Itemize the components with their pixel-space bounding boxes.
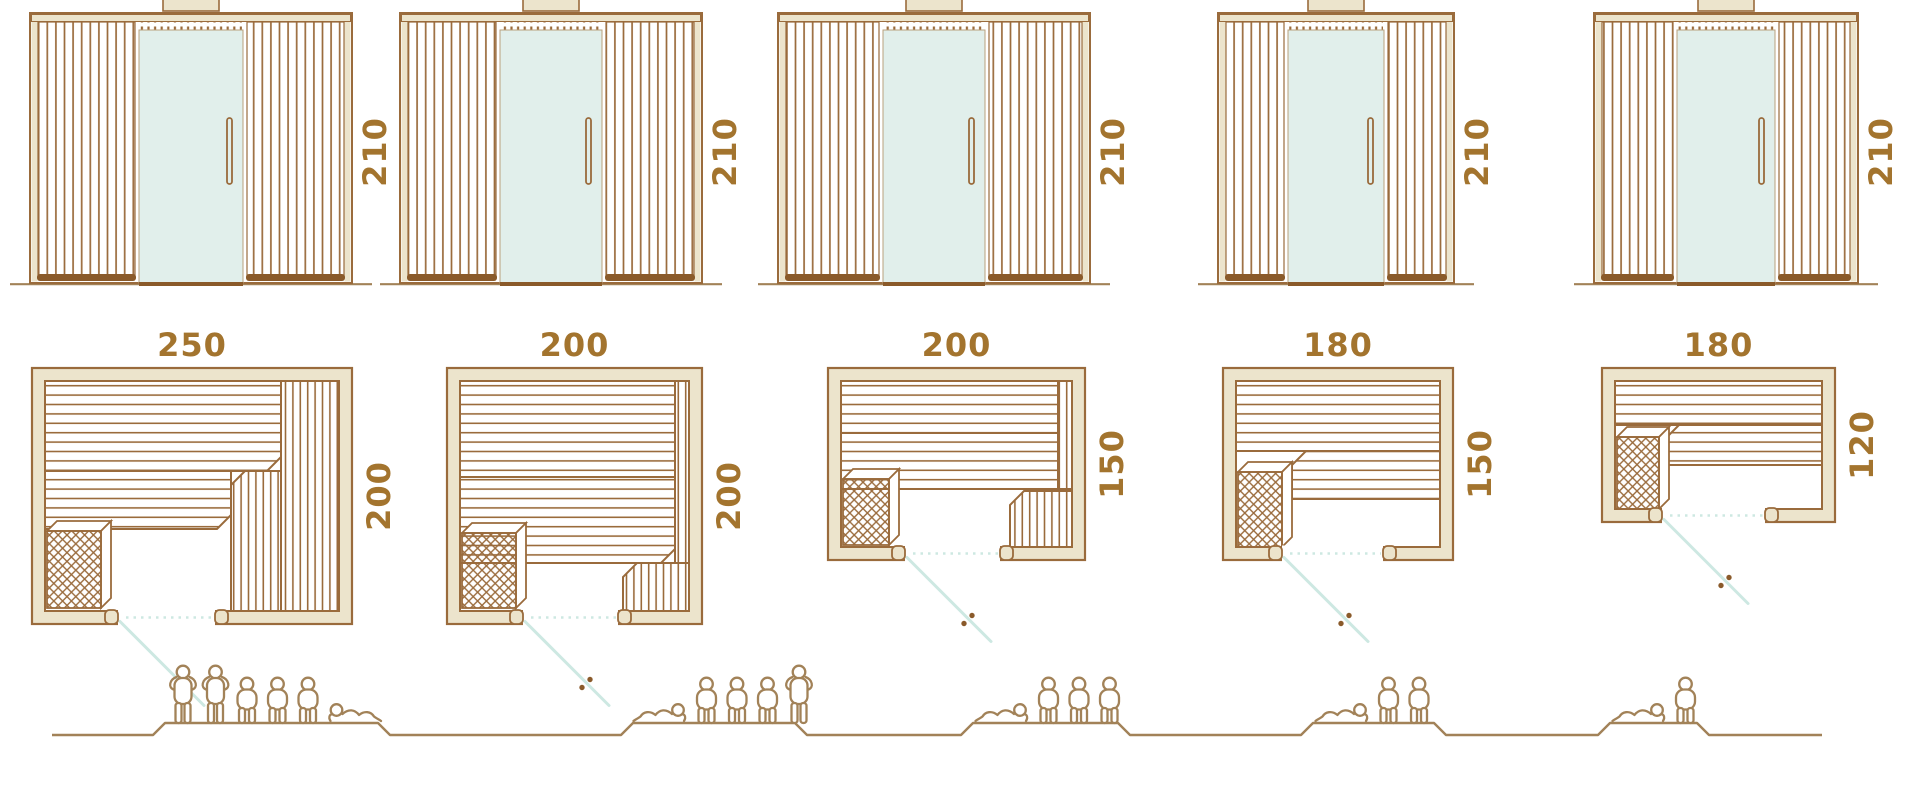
bench-tier (45, 381, 281, 471)
sauna-250x200: 210250200 (10, 0, 398, 723)
width-dimension-label: 180 (1303, 326, 1373, 364)
person-sitting (1100, 678, 1119, 723)
right-slat-panel (247, 22, 344, 277)
heater (47, 531, 101, 608)
bench-tier (460, 381, 675, 477)
width-dimension-label: 200 (922, 326, 992, 364)
door-threshold (500, 282, 602, 286)
person-lying (329, 704, 381, 721)
person-sitting (238, 678, 257, 723)
top-rail (1596, 15, 1857, 22)
capacity-figures (1316, 678, 1429, 723)
door-swing-line (1284, 558, 1368, 642)
door-jamb-right (618, 610, 631, 624)
heater (462, 533, 516, 608)
door-swing-line (907, 558, 991, 642)
bench-tier (841, 381, 1058, 433)
elevation-front: 210 (380, 0, 744, 286)
left-slat-panel (786, 22, 879, 277)
bench-tier (1236, 381, 1440, 451)
capacity-figures (976, 678, 1120, 723)
door-threshold (1288, 282, 1384, 286)
person-sitting (758, 678, 777, 723)
person-standing (203, 666, 229, 723)
height-dimension-label: 210 (356, 117, 394, 187)
person-lying (1613, 704, 1665, 721)
door-handle (227, 118, 232, 184)
person-sitting (1379, 678, 1398, 723)
capacity-figures (634, 666, 812, 723)
capacity-figures (1613, 678, 1696, 723)
bench-tier (1665, 425, 1822, 465)
top-rail (780, 15, 1089, 22)
right-slat-panel (606, 22, 694, 277)
heater (843, 479, 889, 545)
bench-side (1058, 381, 1072, 489)
door-jamb-left (1269, 546, 1282, 560)
floor-plan: 200200 (447, 326, 748, 706)
person-sitting (697, 678, 716, 723)
bench-tier (1615, 381, 1822, 425)
person-lying (976, 704, 1028, 721)
right-slat-panel (1388, 22, 1446, 277)
person-standing (786, 666, 812, 723)
person-sitting (728, 678, 747, 723)
width-dimension-label: 250 (157, 326, 227, 364)
width-dimension-label: 200 (540, 326, 610, 364)
door-jamb-right (215, 610, 228, 624)
heater (1238, 472, 1282, 547)
sauna-200x200: 210200200 (380, 0, 812, 723)
roof-cap (163, 0, 219, 11)
door-handle (586, 118, 591, 184)
left-slat-panel (38, 22, 135, 277)
floor-plan: 180120 (1602, 326, 1881, 604)
depth-dimension-label: 150 (1093, 429, 1131, 499)
elevation-front: 210 (1574, 0, 1900, 286)
door-jamb-right (1765, 508, 1778, 522)
person-lying (634, 704, 686, 721)
person-sitting (299, 678, 318, 723)
door-jamb-left (892, 546, 905, 560)
door-jamb-right (1383, 546, 1396, 560)
depth-dimension-label: 120 (1843, 410, 1881, 480)
bench-side (281, 381, 339, 611)
ground-line (52, 723, 1822, 735)
floor-plan: 200150 (828, 326, 1131, 642)
elevation-front: 210 (10, 0, 394, 286)
roof-cap (1308, 0, 1364, 11)
bench-side (231, 471, 281, 611)
door-jamb-left (105, 610, 118, 624)
bench-tier (1292, 451, 1440, 499)
floor-plan: 180150 (1223, 326, 1499, 642)
sauna-size-diagram: 2102502002102002002102001502101801502101… (0, 0, 1920, 789)
door-threshold (139, 282, 243, 286)
height-dimension-label: 210 (706, 117, 744, 187)
sauna-200x150: 210200150 (758, 0, 1132, 723)
height-dimension-label: 210 (1458, 117, 1496, 187)
door-threshold (1677, 282, 1775, 286)
roof-cap (1698, 0, 1754, 11)
right-slat-panel (989, 22, 1082, 277)
capacity-figures (170, 666, 381, 723)
person-sitting (1039, 678, 1058, 723)
door-jamb-left (510, 610, 523, 624)
door-handle (969, 118, 974, 184)
door-swing-line (525, 622, 609, 706)
door-jamb-right (1000, 546, 1013, 560)
door-swing-line (1664, 520, 1748, 604)
roof-cap (906, 0, 962, 11)
floor-plan: 250200 (32, 326, 398, 706)
top-rail (402, 15, 701, 22)
person-sitting (1676, 678, 1695, 723)
top-rail (32, 15, 351, 22)
person-lying (1316, 704, 1368, 721)
bench-side (1010, 491, 1072, 547)
left-slat-panel (1226, 22, 1284, 277)
right-slat-panel (1779, 22, 1850, 277)
sauna-180x120: 210180120 (1574, 0, 1900, 723)
door-handle (1368, 118, 1373, 184)
height-dimension-label: 210 (1862, 117, 1900, 187)
person-sitting (268, 678, 287, 723)
roof-cap (523, 0, 579, 11)
person-sitting (1070, 678, 1089, 723)
person-sitting (1410, 678, 1429, 723)
bench-side (623, 563, 689, 611)
width-dimension-label: 180 (1684, 326, 1754, 364)
left-slat-panel (1602, 22, 1673, 277)
bench-side (675, 381, 689, 563)
depth-dimension-label: 200 (360, 461, 398, 531)
left-slat-panel (408, 22, 496, 277)
heater (1617, 437, 1659, 509)
sauna-180x150: 210180150 (1198, 0, 1499, 723)
height-dimension-label: 210 (1094, 117, 1132, 187)
depth-dimension-label: 200 (710, 461, 748, 531)
elevation-front: 210 (758, 0, 1132, 286)
door-jamb-left (1649, 508, 1662, 522)
door-handle (1759, 118, 1764, 184)
elevation-front: 210 (1198, 0, 1496, 286)
door-threshold (883, 282, 985, 286)
diagram-canvas: 2102502002102002002102001502101801502101… (0, 0, 1920, 789)
depth-dimension-label: 150 (1461, 429, 1499, 499)
top-rail (1220, 15, 1453, 22)
